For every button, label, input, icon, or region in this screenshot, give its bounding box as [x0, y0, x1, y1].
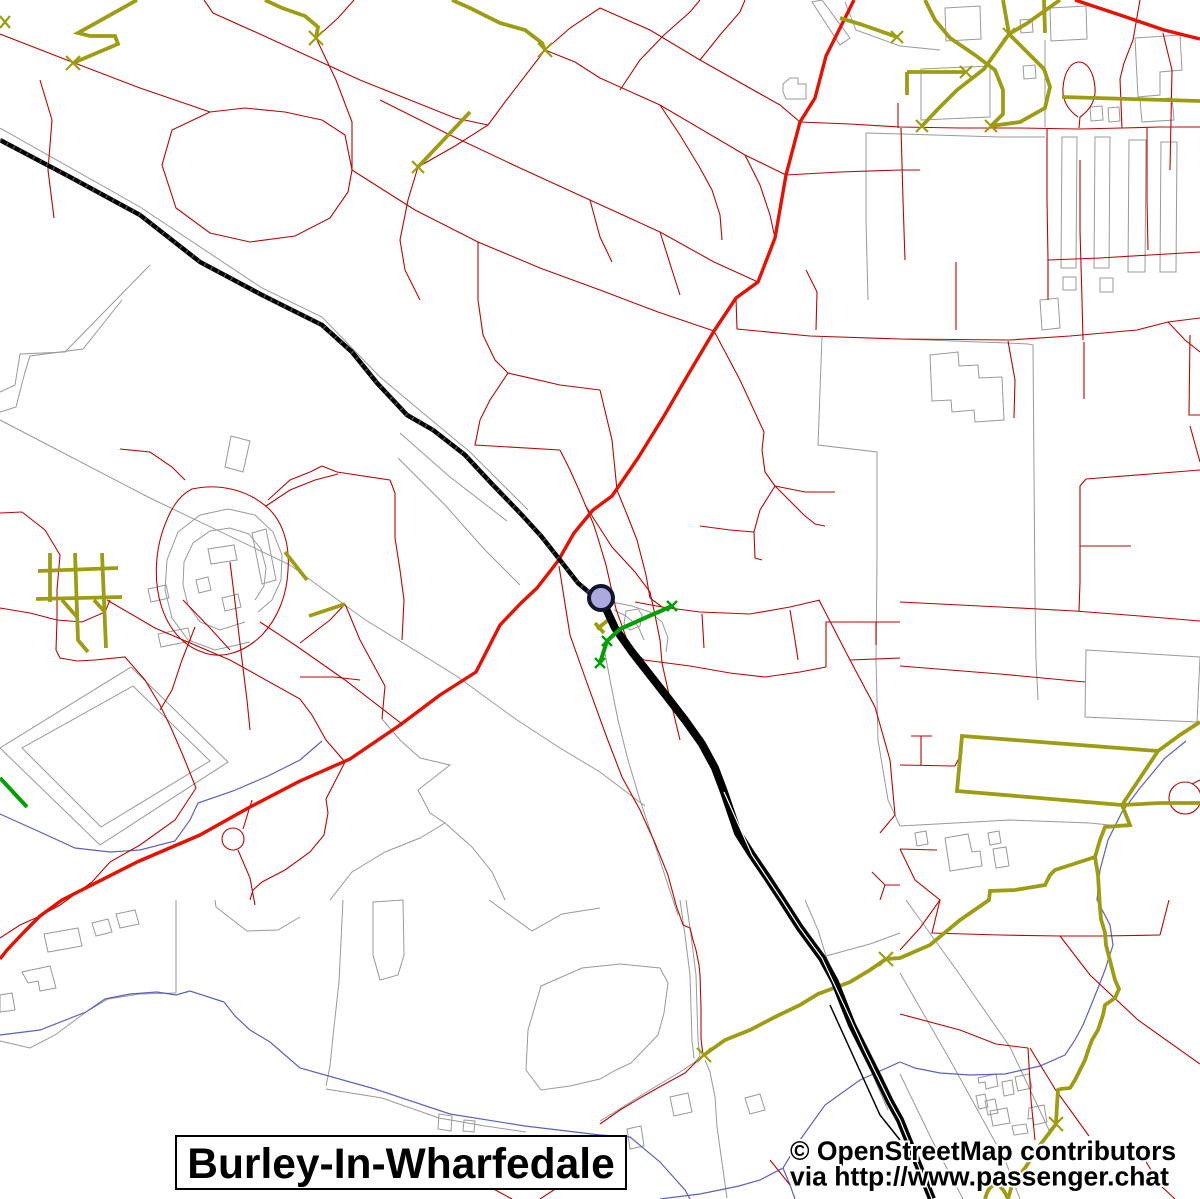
svg-text:via http://www.passenger.chat: via http://www.passenger.chat [790, 1162, 1169, 1192]
svg-text:Burley-In-Wharfedale: Burley-In-Wharfedale [187, 1141, 614, 1188]
